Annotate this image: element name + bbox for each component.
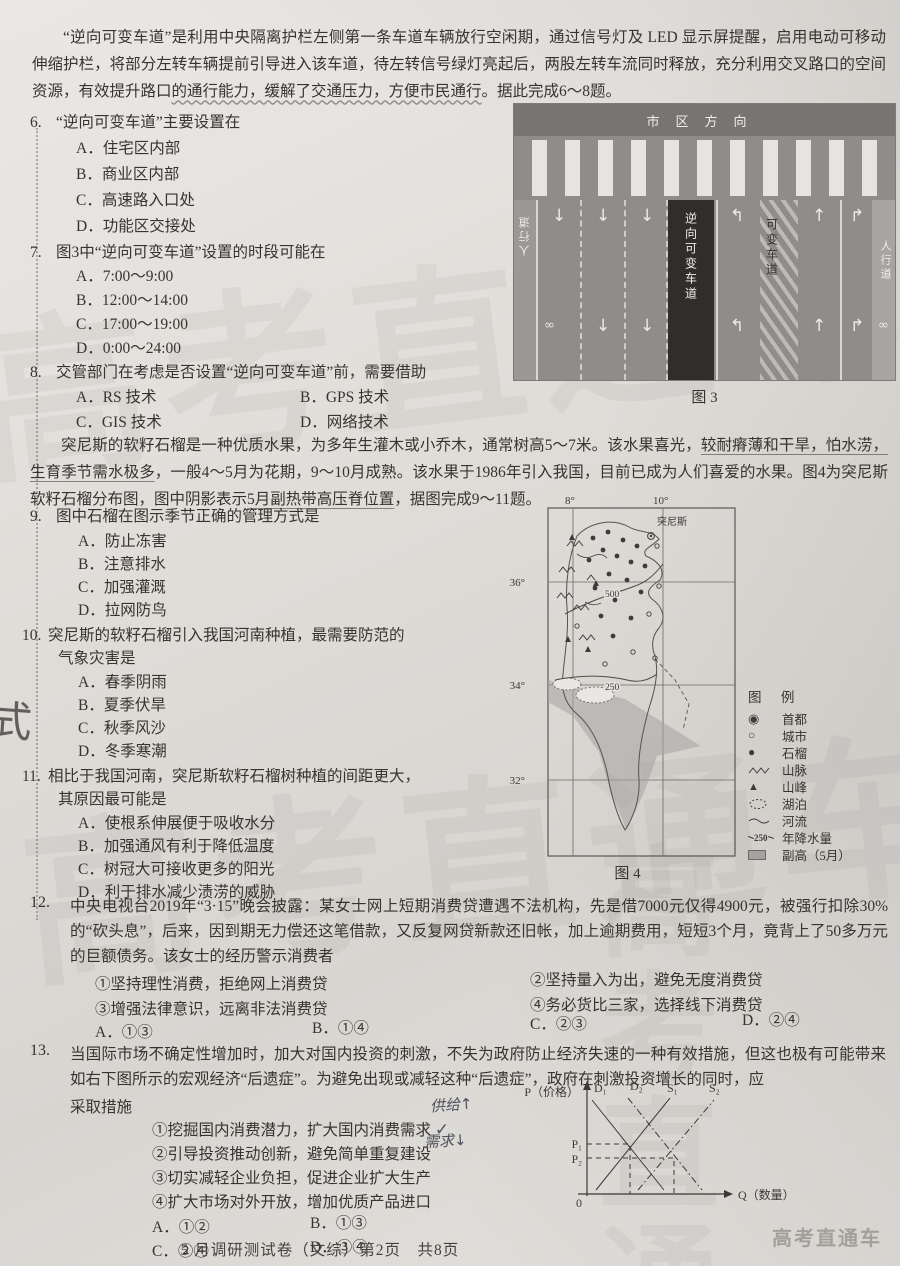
q13-item-1: ①挖掘国内消费潜力，扩大国内消费需求 ✓ [152,1118,449,1140]
p1-label: P₁ [572,1139,582,1151]
question-10-stem: 10.突尼斯的软籽石榴引入我国河南种植，最需要防范的 [22,623,405,645]
straight-down-arrow: ↓ [552,206,566,226]
reverse-variable-lane-label: 逆向可变车道 [683,212,700,302]
p1-guide [587,1144,630,1194]
legend-item-peak: ▲ 山峰 [748,778,898,795]
legend-item-mountain-range: 山脉 [748,761,898,778]
page-footer: 5 月调研测试卷（文综）第2页 共8页 [0,1238,640,1260]
s2-label: S₂ [709,1081,720,1095]
price-axis-arrow [583,1081,591,1090]
question-10-stem-line2: 气象灾害是 [58,646,136,668]
q13-option-a: A．①② [152,1215,210,1237]
intro911-text: 突尼斯的软籽石榴是一种优质水果，为多年生灌木或小乔木，通常树高5～7米。该水果喜… [61,437,701,454]
question-9-number: 9. [30,508,56,526]
demand-line-d2 [628,1098,702,1190]
s1-label: S₁ [667,1081,678,1095]
q12-option-c: C．②③ [530,1012,587,1034]
q8-option-c: C．GIS 技术 [76,410,162,432]
reverse-variable-lane: 逆向可变车道 [668,200,714,380]
question-13-text-line3: 采取措施 [70,1095,132,1117]
q13-item-1-text: ①挖掘国内消费潜力，扩大国内消费需求 [152,1122,431,1139]
question-6-text: “逆向可变车道”主要设置在 [56,114,240,131]
left-sidewalk-label: 人行道 [517,214,533,256]
bicycle-lane-icon: ∞ [544,318,555,333]
right-sidewalk: 人行道 [872,200,895,380]
straight-up-arrow: ↑ [812,206,826,226]
capital-icon: ◉ [748,711,782,727]
q6-option-b: B．商业区内部 [76,162,179,184]
handwritten-note-demand: 需求↓ [423,1129,467,1152]
q6-option-d: D．功能区交接处 [76,214,196,236]
q13-item-2: ②引导投资推动创新，避免简单重复建设 [152,1142,431,1164]
legend-item-capital: ◉ 首都 [748,710,898,727]
question-11-stem: 11.相比于我国河南，突尼斯软籽石榴树种植的间距更大， [22,764,420,786]
question-11-number: 11. [22,768,48,786]
capital-symbol-dot [650,535,652,537]
straight-down-arrow: ↓ [640,206,654,226]
lon-label-10: 10° [653,495,668,507]
q12-item-1: ①坚持理性消费，拒绝网上消费贷 [95,972,328,994]
question-6-stem: 6.“逆向可变车道”主要设置在 [30,110,240,132]
q13-option-b: B．①③ [310,1211,367,1233]
q8-option-b: B．GPS 技术 [300,385,389,407]
right-turn-arrow: ↱ [850,316,864,336]
d2-label: D₂ [630,1079,643,1093]
question-7-stem: 7.图3中“逆向可变车道”设置的时段可能在 [30,240,326,262]
q9-option-d: D．拉网防鸟 [78,598,167,620]
map-legend: 图 例 ◉ 首都 ○ 城市 ● 石榴 山脉 ▲ 山峰 [748,686,898,863]
question-10-text: 突尼斯的软籽石榴引入我国河南种植，最需要防范的 [48,627,405,644]
q10-option-d: D．冬季寒潮 [78,739,167,761]
right-sidewalk-label: 人行道 [877,240,893,282]
q12-option-b: B．①④ [312,1016,369,1038]
left-turn-arrow: ↰ [730,206,744,226]
q10-option-c: C．秋季风沙 [78,716,166,738]
supply-demand-chart: P（价格） Q（数量） 0 D₁ D₂ S₁ S₂ P₁ P₂ [478,1078,808,1213]
question-11-text: 相比于我国河南，突尼斯软籽石榴树种植的间距更大， [48,768,420,785]
q12-option-d: D．②④ [742,1008,800,1030]
mountain-range-symbols [557,541,595,640]
q7-option-d: D．0:00～24:00 [76,336,181,358]
q8-option-a: A．RS 技术 [76,385,157,407]
q7-option-a: A．7:00～9:00 [76,264,173,286]
intro-paragraph-q6-8: “逆向可变车道”是利用中央隔离护栏左侧第一条车道车辆放行空闲期，通过信号灯及 L… [32,24,886,105]
isohyet-250-label: 250 [605,683,620,693]
pomegranate-icon: ● [748,745,782,760]
figure-3-road-diagram: 市区方向 人行道 逆向可变车道 可变车道 人行道 ↓ ↓ ↓ ↰ ↑ [514,104,895,380]
intro68-tail: 。据此完成6～8题。 [482,83,622,100]
price-axis-label: P（价格） [524,1084,579,1099]
q10-option-b: B．夏季伏旱 [78,693,166,715]
figure-4-caption: 图 4 [505,862,750,883]
legend-item-lake: 湖泊 [748,795,898,812]
lat-label-36: 36° [510,577,525,589]
bicycle-lane-icon: ∞ [878,318,889,333]
legend-item-precip: 250 年降水量 [748,829,898,846]
question-8-stem: 8.交管部门在考虑是否设置“逆向可变车道”前，需要借助 [30,360,426,382]
lake-icon [748,798,782,810]
q12-item-2: ②坚持量入为出，避免无度消费贷 [530,968,763,990]
isohyet-icon: 250 [748,833,782,843]
question-12-text: 中央电视台2019年“3·15”晚会披露：某女士网上短期消费贷遭遇不法机构，先是… [70,894,888,969]
isohyet-value: 250 [754,833,768,843]
q11-option-a: A．使根系伸展便于吸收水分 [78,811,275,833]
subtropical-high-shading [548,680,701,830]
city-icon: ○ [748,728,782,743]
figure-3-caption: 图 3 [514,386,895,407]
question-6-number: 6. [30,114,56,132]
q13-item-4: ④扩大市场对外开放，增加优质产品进口 [152,1190,431,1212]
q9-option-a: A．防止冻害 [78,529,167,551]
brand-watermark: 高考直通车 [772,1222,882,1251]
left-turn-arrow: ↰ [730,316,744,336]
question-7-number: 7. [30,244,56,262]
q6-option-c: C．高速路入口处 [76,188,195,210]
road-lanes: 人行道 逆向可变车道 可变车道 人行道 ↓ ↓ ↓ ↰ ↑ ↱ ∞ ↓ [514,200,895,380]
variable-lane-label: 可变车道 [764,218,781,278]
d1-label: D₁ [594,1081,607,1095]
question-11-stem-line2: 其原因最可能是 [58,787,167,809]
legend-item-city: ○ 城市 [748,727,898,744]
city-direction-bar: 市区方向 [514,104,895,136]
q12-option-a: A．①③ [95,1020,153,1042]
lane-divider [716,200,718,380]
straight-up-arrow: ↑ [812,316,826,336]
question-9-text: 图中石榴在图示季节正确的管理方式是 [56,508,320,525]
city-direction-label: 市区方向 [514,111,895,130]
question-10-number: 10. [22,627,48,645]
legend-title: 图 例 [748,686,898,706]
q13-item-3: ③切实减轻企业负担，促进企业扩大生产 [152,1166,431,1188]
origin-label: 0 [576,1196,582,1210]
question-13-number: 13. [30,1042,56,1060]
legend-item-river: 河流 [748,812,898,829]
figure-4-map: 8° 10° 36° 34° 32° 500 250 突尼斯 [505,494,900,894]
river-icon [748,817,782,825]
lake-glyph [748,798,770,810]
tunisia-map-svg: 8° 10° 36° 34° 32° 500 250 突尼斯 [505,494,750,886]
wave-glyph [748,817,772,825]
lane-divider [624,200,626,380]
lane-divider [580,200,582,380]
demand-line-d1 [592,1100,664,1190]
question-12: 12. 中央电视台2019年“3·15”晚会披露：某女士网上短期消费贷遭遇不法机… [30,894,888,969]
right-turn-arrow: ↱ [850,206,864,226]
lane-divider [840,200,842,380]
handwritten-note-supply: 供给↑ [429,1093,473,1117]
question-9-stem: 9.图中石榴在图示季节正确的管理方式是 [30,504,320,526]
q9-option-c: C．加强灌溉 [78,575,166,597]
lat-label-34: 34° [510,680,525,692]
straight-down-arrow: ↓ [596,316,610,336]
q12-item-3: ③增强法律意识，远离非法消费贷 [95,997,328,1019]
left-sidewalk: 人行道 [514,200,538,380]
supply-line-s2 [638,1100,714,1190]
intro68-underlined: 的通行能力，缓解了交通压力，方便市民通行 [172,83,482,100]
mountain-range-icon [748,765,782,775]
legend-label: 副高（5月） [782,845,851,864]
legend-item-pomegranate: ● 石榴 [748,744,898,761]
question-8-text: 交管部门在考虑是否设置“逆向可变车道”前，需要借助 [56,364,426,381]
crosswalk-stripes [532,140,877,196]
quantity-axis-arrow [724,1190,733,1198]
dashed-border [655,659,689,730]
shading-swatch-icon [748,850,782,860]
question-7-text: 图3中“逆向可变车道”设置的时段可能在 [56,244,326,261]
mountain-peak-symbols [565,534,599,652]
q9-option-b: B．注意排水 [78,552,166,574]
question-8-number: 8. [30,364,56,382]
exam-page: 高考直通车 高考直通车 高考直通车 式 “逆向可变车道”是利用中央隔离护栏左侧第… [0,0,900,1266]
straight-down-arrow: ↓ [596,206,610,226]
q10-option-a: A．春季阴雨 [78,670,167,692]
q11-option-b: B．加强通风有利于降低温度 [78,834,274,856]
mountain-peak-icon: ▲ [748,781,782,793]
q11-option-c: C．树冠大可接收更多的阳光 [78,857,274,879]
p2-label: P₂ [572,1154,582,1166]
q7-option-b: B．12:00～14:00 [76,288,188,310]
isohyet-500-label: 500 [605,590,620,600]
zigzag-glyph [748,765,772,775]
quantity-axis-label: Q（数量） [738,1187,795,1202]
lat-label-32: 32° [510,775,525,787]
q6-option-a: A．住宅区内部 [76,136,180,158]
country-label: 突尼斯 [657,515,687,528]
q7-option-c: C．17:00～19:00 [76,312,188,334]
legend-item-subtropical-high: 副高（5月） [748,846,898,863]
margin-glyph: 式 [0,687,34,751]
lon-label-8: 8° [565,495,575,507]
straight-down-arrow: ↓ [640,316,654,336]
isohyet-500-line [565,564,663,614]
q8-option-d: D．网络技术 [300,410,389,432]
question-12-number: 12. [30,894,56,912]
